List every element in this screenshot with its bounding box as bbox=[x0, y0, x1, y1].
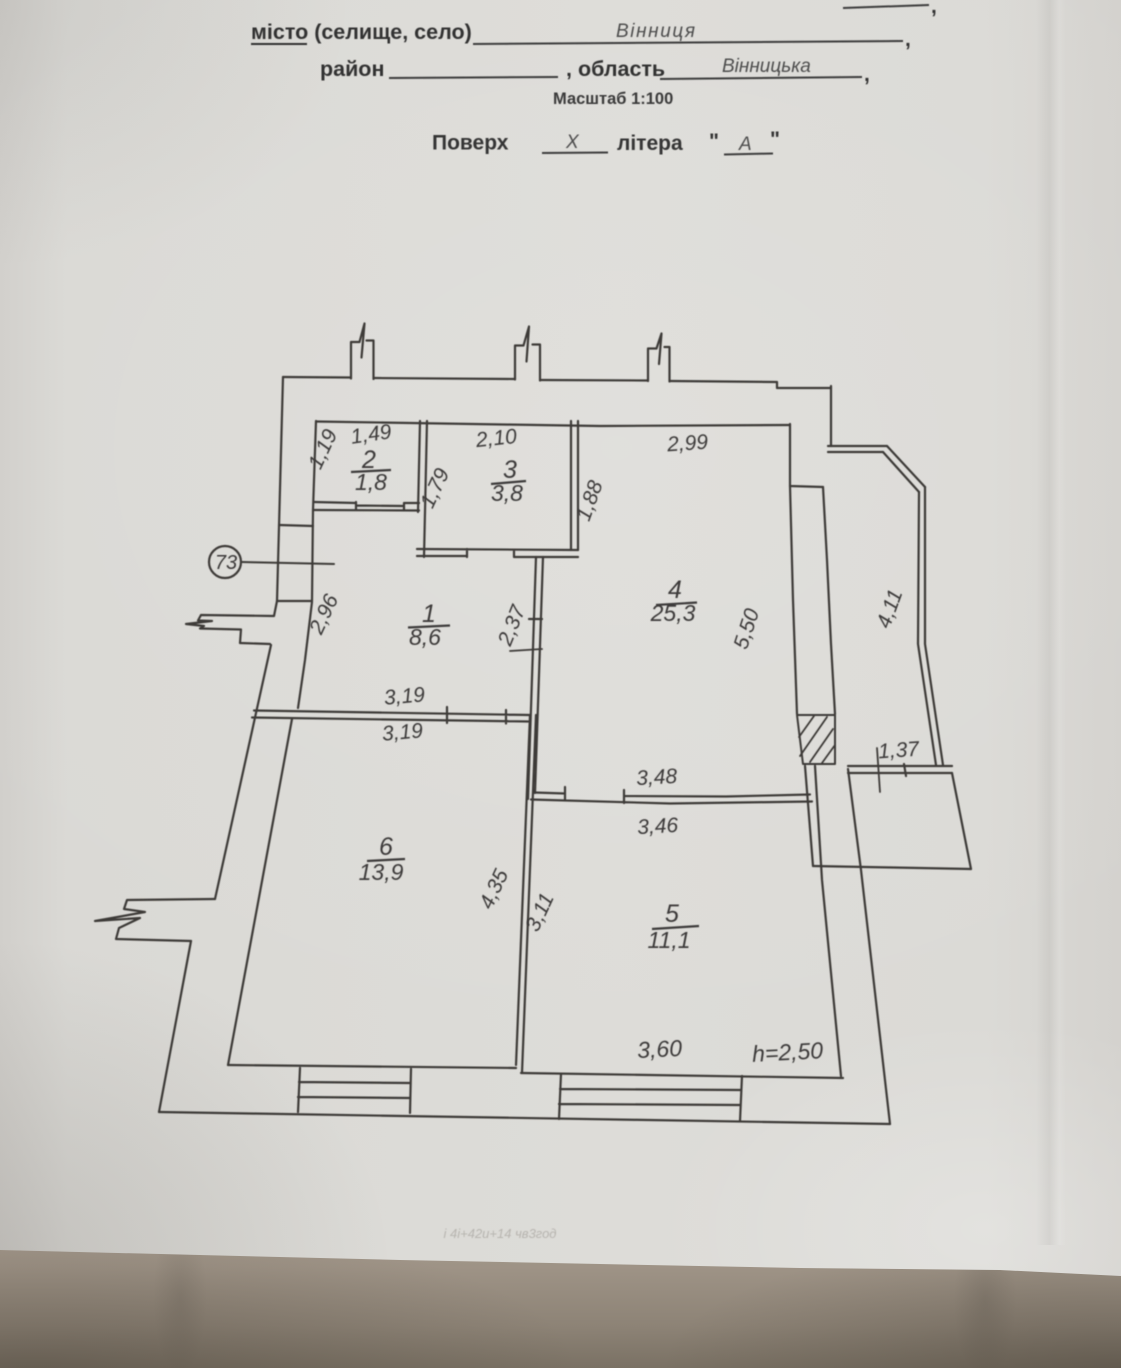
svg-text:, область: , область bbox=[566, 57, 665, 81]
svg-text:h=2,50: h=2,50 bbox=[751, 1037, 823, 1067]
svg-text:11,1: 11,1 bbox=[647, 927, 690, 953]
svg-text:3,46: 3,46 bbox=[637, 814, 679, 839]
svg-text:Вінницька: Вінницька bbox=[722, 56, 811, 77]
svg-text:,: , bbox=[864, 63, 870, 86]
svg-text:13,9: 13,9 bbox=[359, 859, 404, 885]
svg-text:і 4і+42и+14 чв3год: і 4і+42и+14 чв3год bbox=[444, 1226, 557, 1241]
svg-text:3,48: 3,48 bbox=[636, 765, 678, 790]
svg-text:місто (селище, село): місто (селище, село) bbox=[251, 20, 472, 44]
svg-text:6: 6 bbox=[379, 833, 393, 861]
svg-text:2,37: 2,37 bbox=[493, 601, 531, 650]
svg-text:5,50: 5,50 bbox=[730, 606, 765, 652]
svg-text:73: 73 bbox=[215, 552, 237, 574]
svg-text:": " bbox=[770, 128, 780, 151]
svg-text:X: X bbox=[565, 132, 580, 153]
svg-text:2,10: 2,10 bbox=[474, 425, 518, 452]
svg-text:3,60: 3,60 bbox=[637, 1035, 683, 1063]
svg-text:25,3: 25,3 bbox=[650, 600, 696, 626]
svg-text:,: , bbox=[931, 0, 937, 18]
svg-text:3,8: 3,8 bbox=[491, 480, 523, 506]
svg-text:3,11: 3,11 bbox=[521, 890, 558, 935]
svg-text:1,37: 1,37 bbox=[877, 738, 921, 764]
svg-text:Поверх: Поверх bbox=[432, 132, 509, 155]
svg-text:5: 5 bbox=[665, 900, 679, 928]
svg-text:Масштаб 1:100: Масштаб 1:100 bbox=[553, 90, 673, 108]
svg-text:район: район bbox=[320, 57, 384, 81]
svg-text:3,19: 3,19 bbox=[383, 683, 426, 710]
svg-text:4,35: 4,35 bbox=[475, 866, 513, 913]
svg-text:3,19: 3,19 bbox=[381, 719, 424, 746]
svg-text:2,99: 2,99 bbox=[665, 431, 709, 457]
svg-text:8,6: 8,6 bbox=[409, 624, 441, 650]
svg-text:1,19: 1,19 bbox=[304, 426, 342, 473]
svg-text:2,96: 2,96 bbox=[305, 591, 344, 639]
svg-text:А: А bbox=[738, 134, 752, 155]
svg-text:1,8: 1,8 bbox=[355, 469, 387, 495]
svg-text:1,79: 1,79 bbox=[416, 465, 454, 512]
svg-text:": " bbox=[709, 130, 719, 153]
svg-text:1,49: 1,49 bbox=[349, 420, 393, 449]
svg-text:4,11: 4,11 bbox=[872, 586, 907, 631]
svg-text:літера: літера bbox=[617, 132, 683, 155]
svg-text:Вінниця: Вінниця bbox=[616, 21, 697, 42]
svg-text:,: , bbox=[905, 28, 911, 51]
